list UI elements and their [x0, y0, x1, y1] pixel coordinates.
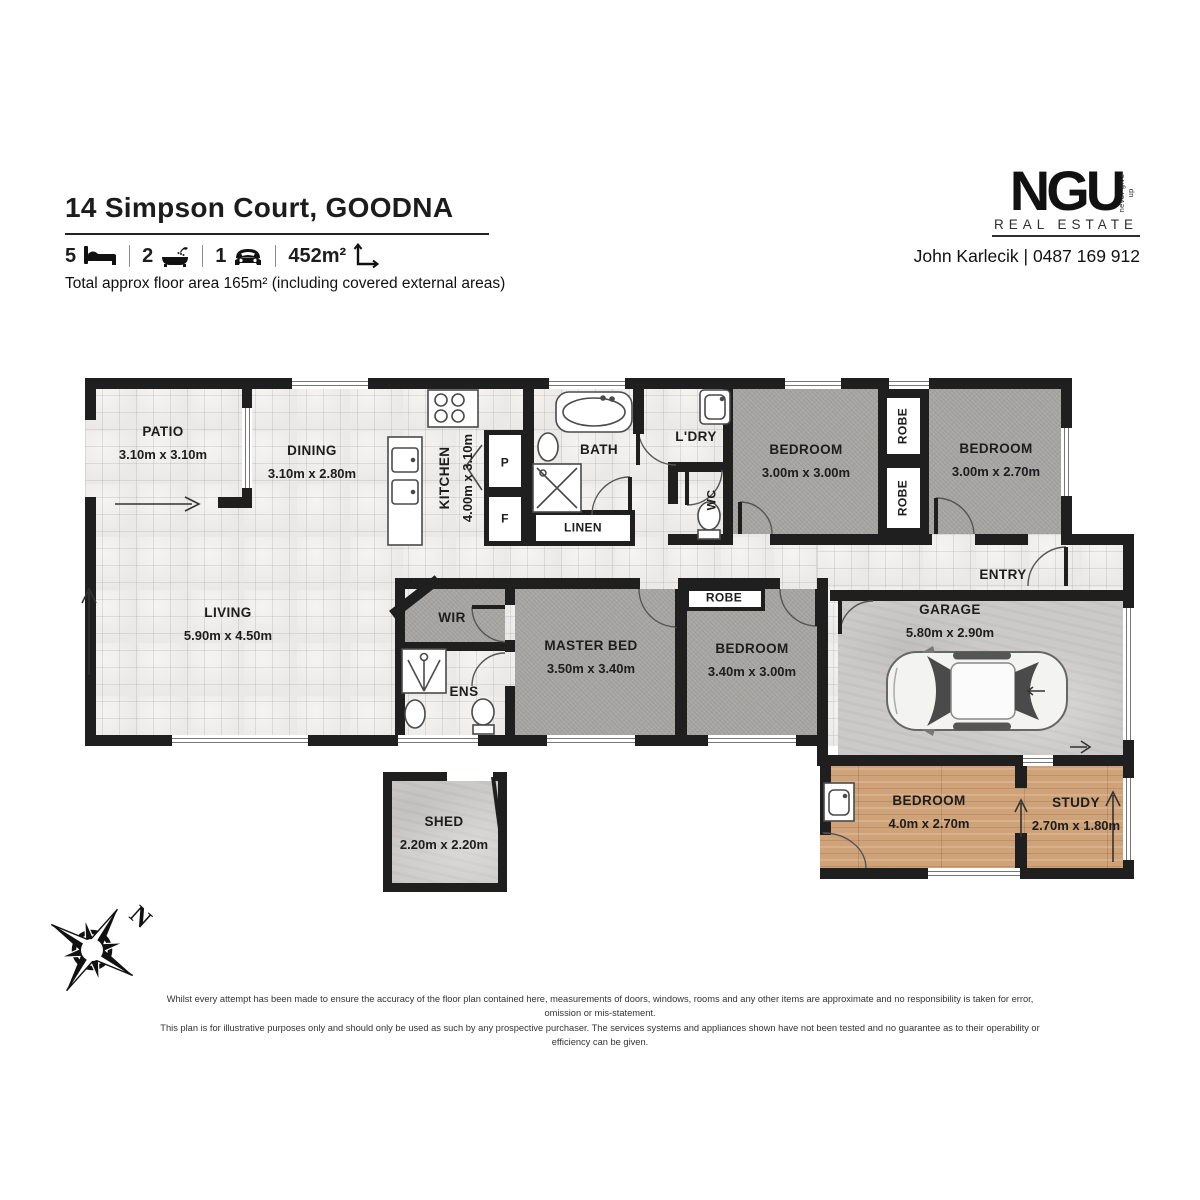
land-stat: 452m²: [288, 243, 379, 269]
cars-count: 1: [215, 245, 226, 268]
room-label-dining: DINING3.10m x 2.80m: [268, 439, 356, 485]
cars-stat: 1: [215, 244, 263, 268]
wall: [505, 589, 515, 605]
wall: [1015, 766, 1027, 788]
window: [1061, 428, 1072, 496]
wall: [668, 462, 728, 472]
room-label-bath: BATH: [580, 438, 618, 462]
baths-stat: 2: [142, 244, 190, 268]
room-label-study: STUDY2.70m x 1.80m: [1032, 791, 1120, 837]
property-stats: 5 2 1: [65, 243, 379, 269]
agent-contact: John Karlecik | 0487 169 912: [914, 246, 1140, 267]
window: [785, 378, 841, 389]
room-label-living: LIVING5.90m x 4.50m: [184, 601, 272, 647]
page-title: 14 Simpson Court, GOODNA: [65, 192, 453, 224]
window: [242, 408, 252, 488]
stat-separator: [202, 245, 203, 267]
wall: [770, 534, 932, 545]
room-label-entry: ENTRY: [979, 563, 1026, 587]
window: [708, 735, 796, 746]
disclaimer-line1: Whilst every attempt has been made to en…: [150, 992, 1050, 1021]
compass-rose: N: [40, 888, 160, 1003]
window: [172, 735, 308, 746]
bath-icon: [160, 244, 190, 268]
wall: [820, 755, 1134, 766]
window: [928, 868, 1020, 879]
stat-separator: [129, 245, 130, 267]
disclaimer-line2: This plan is for illustrative purposes o…: [150, 1021, 1050, 1050]
garage-door-opening: [1123, 608, 1134, 740]
window: [549, 378, 625, 389]
window: [889, 378, 929, 389]
floorplan-page: 14 Simpson Court, GOODNA 5 2 1: [0, 0, 1200, 1200]
stat-separator: [275, 245, 276, 267]
room-label-robe-b: ROBE: [893, 480, 914, 516]
ngu-logo: NGU never give up REAL ESTATE: [992, 166, 1140, 237]
window: [1023, 755, 1053, 766]
shed-door-opening: [447, 772, 493, 781]
beds-stat: 5: [65, 245, 117, 268]
room-label-bedroom4: BEDROOM3.40m x 3.00m: [708, 637, 796, 683]
room-label-robe-a: ROBE: [893, 408, 914, 444]
car-icon: [233, 244, 263, 268]
land-size: 452m²: [288, 245, 346, 268]
wall: [395, 642, 507, 651]
room-label-pantry: P: [501, 453, 509, 474]
room-label-ldry: L'DRY: [675, 425, 716, 449]
room-label-linen: LINEN: [564, 518, 602, 539]
room-label-fridge: F: [501, 509, 509, 530]
wall: [1068, 534, 1134, 545]
wall: [85, 378, 96, 420]
room-label-robe-c: ROBE: [706, 588, 742, 609]
title-divider: [65, 233, 489, 235]
wall: [505, 686, 515, 735]
brand-name: NGU: [1010, 166, 1122, 216]
room-label-wc: WC: [702, 490, 723, 511]
wall: [668, 534, 733, 545]
wall: [820, 755, 831, 835]
window: [1123, 778, 1134, 860]
beds-count: 5: [65, 245, 76, 268]
window: [292, 378, 368, 389]
compass-north-label: N: [124, 900, 158, 934]
window: [398, 735, 478, 746]
wall: [817, 578, 828, 766]
disclaimer: Whilst every attempt has been made to en…: [150, 992, 1050, 1050]
room-label-patio: PATIO3.10m x 3.10m: [119, 420, 207, 466]
wall: [1015, 833, 1027, 872]
room-label-wir: WIR: [438, 606, 465, 630]
area-icon: [353, 243, 379, 269]
room-label-bedroom2: BEDROOM3.00m x 3.00m: [762, 438, 850, 484]
baths-count: 2: [142, 245, 153, 268]
wall: [85, 497, 96, 746]
wall: [668, 472, 678, 504]
room-label-garage: GARAGE5.80m x 2.90m: [906, 598, 994, 644]
room-label-bedroom3: BEDROOM3.00m x 2.70m: [952, 437, 1040, 483]
wall: [633, 389, 644, 434]
wall: [975, 534, 1028, 545]
bed-icon: [83, 245, 117, 267]
room-label-kitchen: KITCHEN4.00m x 3.10m: [433, 434, 479, 522]
floor-area-note: Total approx floor area 165m² (including…: [65, 275, 505, 293]
room-label-master: MASTER BED3.50m x 3.40m: [544, 634, 637, 680]
room-label-ens: ENS: [450, 680, 479, 704]
brand-tagline: never give up: [1117, 170, 1135, 216]
room-label-bedroom5: BEDROOM4.0m x 2.70m: [889, 789, 970, 835]
room-label-shed: SHED2.20m x 2.20m: [400, 810, 488, 856]
window: [547, 735, 635, 746]
